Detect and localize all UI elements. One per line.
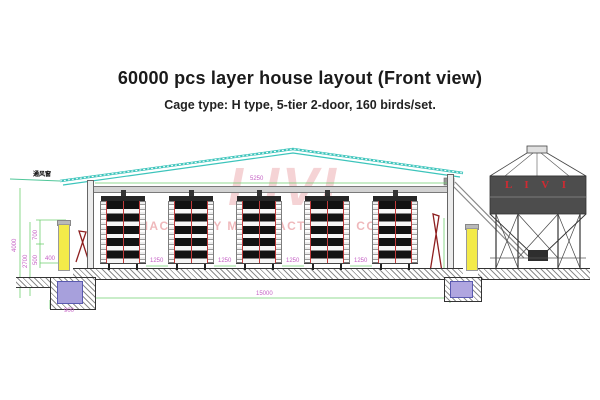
dim-fan-height: 500	[33, 255, 39, 265]
feed-silo	[490, 146, 586, 268]
dim-pit-offset: 400	[45, 256, 55, 262]
dim-fan-top: 700	[33, 230, 39, 240]
silo-brand-label: L I V I	[492, 179, 584, 191]
vent-window-label: 通风窗	[33, 169, 51, 178]
cage-rack	[304, 196, 350, 270]
page-title: 60000 pcs layer house layout (Front view…	[0, 68, 600, 89]
dim-rack-gap: 1250	[150, 258, 163, 264]
page-subtitle: Cage type: H type, 5-tier 2-door, 160 bi…	[0, 98, 600, 112]
left-wall	[87, 180, 94, 272]
cage-rack	[168, 196, 214, 270]
ceiling-beam	[88, 186, 454, 193]
right-fan	[466, 228, 478, 271]
dim-overall-width: 15000	[256, 291, 273, 297]
cage-rack	[236, 196, 282, 270]
right-wall	[447, 174, 454, 272]
dim-rack-gap: 1250	[354, 258, 367, 264]
dim-total-height: 4000	[12, 239, 18, 252]
dim-rack-gap: 1250	[286, 258, 299, 264]
left-fan	[58, 224, 70, 271]
dim-ceiling-span: 5250	[250, 176, 263, 182]
left-pit-water	[57, 281, 83, 304]
dim-wall-height: 2700	[23, 255, 29, 268]
roof	[10, 149, 463, 185]
left-ground	[16, 277, 52, 288]
dim-rack-gap: 1250	[218, 258, 231, 264]
cage-rack	[100, 196, 146, 270]
dim-pit-width: 900	[64, 308, 74, 314]
layer-house-drawing: 60000 pcs layer house layout (Front view…	[0, 0, 600, 400]
right-pit-water	[450, 281, 473, 298]
cage-rack	[372, 196, 418, 270]
silo-ground	[478, 268, 590, 280]
